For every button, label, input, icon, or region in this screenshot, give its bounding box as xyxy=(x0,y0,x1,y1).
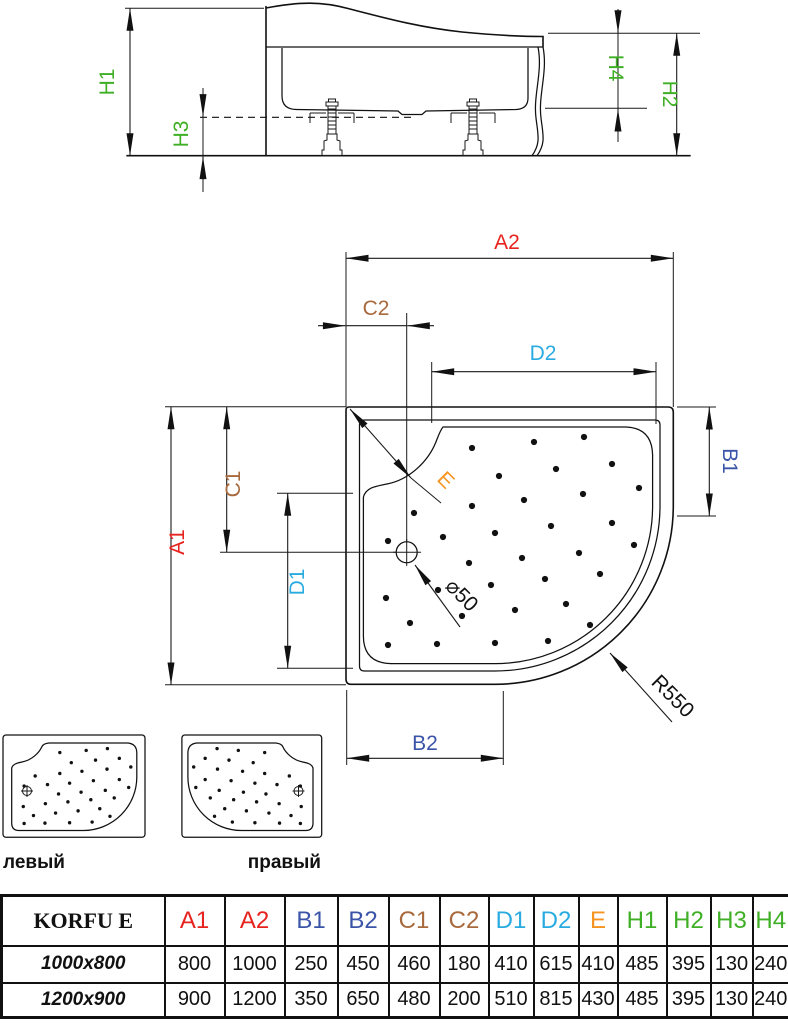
side-view: H1 H3 H4 H2 xyxy=(96,3,700,192)
anti-slip-dot xyxy=(278,821,281,824)
column-header-d1: D1 xyxy=(489,896,534,946)
column-header-a2: A2 xyxy=(225,896,285,946)
value-d2-row1: 615 xyxy=(534,946,579,983)
anti-slip-dot xyxy=(203,757,206,760)
anti-slip-dot xyxy=(94,758,97,761)
anti-slip-dot xyxy=(553,466,559,472)
anti-slip-dot xyxy=(440,534,446,540)
anti-slip-dot xyxy=(289,814,292,817)
anti-slip-dot xyxy=(66,800,69,803)
anti-slip-dot xyxy=(407,620,413,626)
column-header-d2: D2 xyxy=(534,896,579,946)
b2-label: B2 xyxy=(412,732,438,755)
anti-slip-dot xyxy=(194,786,197,789)
anti-slip-dot-pattern xyxy=(383,434,642,648)
anti-slip-dot xyxy=(232,798,235,801)
anti-slip-dot xyxy=(542,576,548,582)
value-c1-row1: 460 xyxy=(389,946,440,983)
anti-slip-dot xyxy=(496,473,502,479)
anti-slip-dot xyxy=(129,765,132,768)
column-header-h1: H1 xyxy=(618,896,667,946)
anti-slip-dot xyxy=(44,802,47,805)
value-h1-row1: 485 xyxy=(618,946,667,983)
anti-slip-dot xyxy=(385,642,391,648)
anti-slip-dot xyxy=(22,822,25,825)
anti-slip-dot xyxy=(521,497,527,503)
anti-slip-dot xyxy=(223,807,226,810)
anti-slip-dot xyxy=(68,821,71,824)
anti-slip-dot xyxy=(411,510,417,516)
anti-slip-dot xyxy=(98,807,101,810)
anti-slip-dot xyxy=(531,439,537,445)
anti-slip-dot xyxy=(58,751,61,754)
anti-slip-dot xyxy=(108,815,111,818)
column-header-c1: C1 xyxy=(389,896,440,946)
h2-label: H2 xyxy=(658,81,681,108)
d2-label: D2 xyxy=(530,342,557,365)
anti-slip-dot xyxy=(255,800,258,803)
anti-slip-dot xyxy=(548,523,554,529)
value-h2-row2: 395 xyxy=(667,983,711,1018)
anti-slip-dot xyxy=(252,761,255,764)
anti-slip-dot xyxy=(32,814,35,817)
anti-slip-dot xyxy=(466,560,472,566)
anti-slip-dot xyxy=(22,805,25,808)
anti-slip-dot xyxy=(215,747,218,750)
anti-slip-dot xyxy=(68,781,71,784)
size-row-label: 1200x900 xyxy=(2,983,165,1018)
drawing-canvas: H1 H3 H4 H2 xyxy=(0,0,788,892)
c2-label: C2 xyxy=(363,297,390,320)
value-a1-row2: 900 xyxy=(165,983,225,1018)
anti-slip-dot xyxy=(563,601,569,607)
top-view: A2 C2 D2 B1 A1 C1 D1 B2 E ⌀50 R550 xyxy=(165,231,741,765)
anti-slip-dot xyxy=(43,821,46,824)
variant-right-label: правый xyxy=(248,852,321,873)
adjustable-foot-left xyxy=(310,99,354,156)
value-h1-row2: 485 xyxy=(618,983,667,1018)
anti-slip-dot xyxy=(104,789,107,792)
anti-slip-dot xyxy=(242,790,245,793)
variant-thumbnails: левый правый xyxy=(3,427,626,873)
value-a2-row1: 1000 xyxy=(225,946,285,983)
column-header-h2: H2 xyxy=(667,896,711,946)
anti-slip-dot xyxy=(118,778,121,781)
anti-slip-dot xyxy=(469,503,475,509)
tray-rim-outline xyxy=(360,420,661,671)
anti-slip-dot xyxy=(545,638,551,644)
anti-slip-dot xyxy=(237,749,240,752)
anti-slip-dot xyxy=(46,783,49,786)
variant-left-thumbnail xyxy=(3,427,626,837)
anti-slip-dot xyxy=(267,811,270,814)
right-thumb-drain xyxy=(293,785,305,797)
value-h2-row1: 395 xyxy=(667,946,711,983)
left-thumb-dot-pattern xyxy=(22,747,133,825)
anti-slip-dot xyxy=(587,622,593,628)
column-header-h4: H4 xyxy=(753,896,788,946)
anti-slip-dot xyxy=(245,809,248,812)
anti-slip-dot xyxy=(519,555,525,561)
a1-label: A1 xyxy=(166,529,189,555)
h4-label: H4 xyxy=(604,55,627,82)
anti-slip-dot xyxy=(213,815,216,818)
value-c2-row1: 180 xyxy=(440,946,489,983)
anti-slip-dot xyxy=(70,761,73,764)
anti-slip-dot xyxy=(264,792,267,795)
anti-slip-dot xyxy=(79,790,82,793)
anti-slip-dot xyxy=(383,595,389,601)
front-skirt-inner xyxy=(532,47,539,156)
column-header-c2: C2 xyxy=(440,896,489,946)
anti-slip-dot xyxy=(263,772,266,775)
c1-label: C1 xyxy=(222,471,245,498)
anti-slip-dot xyxy=(288,774,291,777)
corner-radius-label: R550 xyxy=(647,671,699,723)
anti-slip-dot xyxy=(229,779,232,782)
anti-slip-dot xyxy=(385,538,391,544)
anti-slip-dot xyxy=(609,520,615,526)
anti-slip-dot xyxy=(253,821,256,824)
size-row-label: 1000x800 xyxy=(2,946,165,983)
value-h3-row2: 130 xyxy=(711,983,753,1018)
anti-slip-dot xyxy=(299,822,302,825)
anti-slip-dot xyxy=(488,582,494,588)
value-e-row2: 430 xyxy=(579,983,618,1018)
anti-slip-dot xyxy=(492,530,498,536)
column-header-b2: B2 xyxy=(338,896,389,946)
anti-slip-dot xyxy=(84,749,87,752)
anti-slip-dot xyxy=(57,792,60,795)
column-header-a1: A1 xyxy=(165,896,225,946)
anti-slip-dot xyxy=(631,542,637,548)
h1-label: H1 xyxy=(96,69,119,96)
value-b2-row2: 650 xyxy=(338,983,389,1018)
anti-slip-dot xyxy=(218,789,221,792)
value-b1-row2: 350 xyxy=(285,983,338,1018)
table-title: KORFU E xyxy=(2,896,165,946)
anti-slip-dot xyxy=(76,809,79,812)
anti-slip-dot xyxy=(275,783,278,786)
value-d1-row1: 410 xyxy=(489,946,534,983)
anti-slip-dot xyxy=(434,641,440,647)
b1-label: B1 xyxy=(718,448,741,474)
anti-slip-dot xyxy=(263,751,266,754)
a1-extensions xyxy=(165,407,346,685)
anti-slip-dot xyxy=(636,485,642,491)
tray-outer-outline xyxy=(346,407,673,684)
column-header-h3: H3 xyxy=(711,896,753,946)
anti-slip-dot xyxy=(469,445,475,451)
variant-right-thumbnail xyxy=(182,735,322,837)
anti-slip-dot xyxy=(192,765,195,768)
anti-slip-dot xyxy=(54,811,57,814)
anti-slip-dot xyxy=(113,796,116,799)
anti-slip-dot xyxy=(209,796,212,799)
value-b2-row1: 450 xyxy=(338,946,389,983)
value-c2-row2: 200 xyxy=(440,983,489,1018)
anti-slip-dot xyxy=(90,820,93,823)
anti-slip-dot xyxy=(241,770,244,773)
value-c1-row2: 480 xyxy=(389,983,440,1018)
adjustable-foot-right xyxy=(451,99,495,156)
anti-slip-dot xyxy=(597,571,603,577)
value-a1-row1: 800 xyxy=(165,946,225,983)
value-e-row1: 410 xyxy=(579,946,618,983)
anti-slip-dot xyxy=(58,772,61,775)
h3-label: H3 xyxy=(170,121,193,148)
a2-label: A2 xyxy=(494,231,520,254)
anti-slip-dot xyxy=(492,640,498,646)
d1-label: D1 xyxy=(286,569,309,596)
anti-slip-dot xyxy=(89,798,92,801)
anti-slip-dot xyxy=(216,767,219,770)
e-label: E xyxy=(433,467,459,493)
anti-slip-dot xyxy=(118,757,121,760)
anti-slip-dot xyxy=(227,758,230,761)
anti-slip-dot xyxy=(576,550,582,556)
anti-slip-dot xyxy=(92,779,95,782)
right-thumb-dot-pattern xyxy=(192,747,303,825)
value-d1-row2: 510 xyxy=(489,983,534,1018)
anti-slip-dot xyxy=(33,774,36,777)
anti-slip-dot xyxy=(300,805,303,808)
anti-slip-dot xyxy=(105,767,108,770)
value-d2-row2: 815 xyxy=(534,983,579,1018)
value-h4-row2: 240 xyxy=(753,983,788,1018)
anti-slip-dot xyxy=(580,491,586,497)
drain xyxy=(393,539,421,566)
value-h4-row1: 240 xyxy=(753,946,788,983)
column-header-e: E xyxy=(579,896,618,946)
value-a2-row2: 1200 xyxy=(225,983,285,1018)
anti-slip-dot xyxy=(609,461,615,467)
anti-slip-dot xyxy=(512,607,518,613)
anti-slip-dot xyxy=(203,778,206,781)
value-b1-row1: 250 xyxy=(285,946,338,983)
b1-extensions xyxy=(677,407,716,516)
anti-slip-dot xyxy=(231,820,234,823)
anti-slip-dot xyxy=(106,747,109,750)
value-h3-row1: 130 xyxy=(711,946,753,983)
anti-slip-dot xyxy=(277,802,280,805)
anti-slip-dot xyxy=(127,786,130,789)
dimensions-table: KORFU EA1A2B1B2C1C2D1D2EH1H2H3H41000x800… xyxy=(0,894,788,1019)
tray-top-wave xyxy=(266,3,543,47)
technical-drawing-sheet: H1 H3 H4 H2 xyxy=(0,0,788,1023)
anti-slip-dot xyxy=(253,781,256,784)
basin-profile xyxy=(282,48,528,115)
column-header-b1: B1 xyxy=(285,896,338,946)
anti-slip-dot xyxy=(581,434,587,440)
variant-left-label: левый xyxy=(3,852,65,873)
anti-slip-dot xyxy=(80,770,83,773)
